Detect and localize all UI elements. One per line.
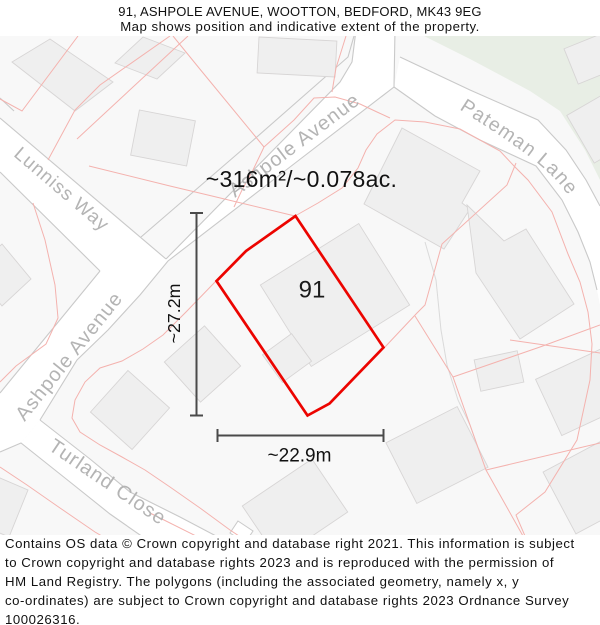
- svg-text:91, ASHPOLE AVENUE, WOOTTON, B: 91, ASHPOLE AVENUE, WOOTTON, BEDFORD, MK…: [118, 4, 481, 19]
- svg-text:Contains OS data © Crown copyr: Contains OS data © Crown copyright and d…: [5, 536, 575, 551]
- svg-text:~316m²/~0.078ac.: ~316m²/~0.078ac.: [206, 166, 397, 192]
- svg-text:co-ordinates) are subject to C: co-ordinates) are subject to Crown copyr…: [5, 593, 569, 608]
- svg-text:HM Land Registry. The polygons: HM Land Registry. The polygons (includin…: [5, 574, 519, 589]
- svg-text:~22.9m: ~22.9m: [268, 446, 332, 467]
- svg-text:91: 91: [299, 277, 326, 304]
- svg-text:100026316.: 100026316.: [5, 612, 80, 625]
- svg-text:~27.2m: ~27.2m: [164, 284, 184, 344]
- svg-text:Map shows position and indicat: Map shows position and indicative extent…: [120, 19, 480, 34]
- svg-text:to Crown copyright and databas: to Crown copyright and database rights 2…: [5, 555, 554, 570]
